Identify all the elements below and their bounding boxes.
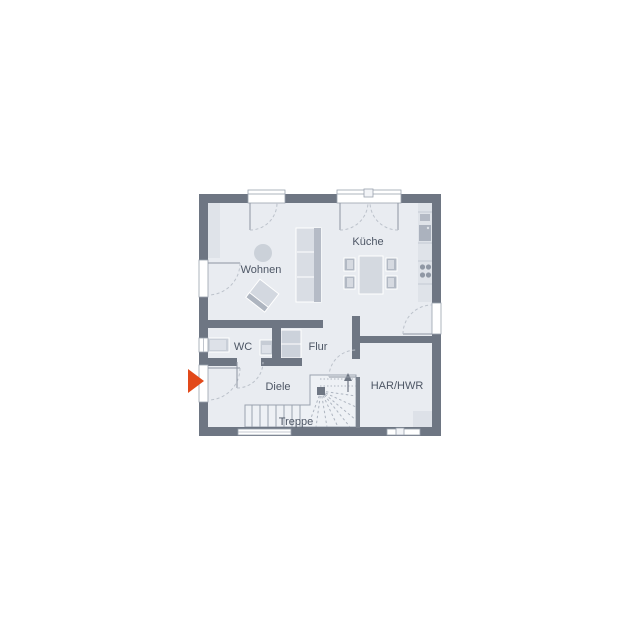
water-heater (413, 411, 432, 428)
room-label-diele: Diele (265, 381, 290, 393)
room-label-treppe: Treppe (279, 416, 313, 428)
kitchen-counter (418, 203, 432, 302)
kitchen-sink (420, 214, 430, 221)
window-har (387, 428, 420, 435)
wall-stairs-har (356, 377, 360, 428)
sofa (296, 228, 321, 302)
floor-plan-page: Wohnen Küche WC Flur Diele HAR/HWR Trepp… (0, 0, 636, 636)
window-treppe (238, 429, 291, 435)
window-wc (199, 338, 208, 352)
dining-table (359, 256, 383, 294)
floor-plan-svg: Wohnen Küche WC Flur Diele HAR/HWR Trepp… (0, 0, 636, 636)
sideboard (208, 201, 220, 258)
wall-wardrobe-bottom (261, 358, 302, 366)
room-label-kueche: Küche (352, 236, 383, 248)
room-label-har-hwr: HAR/HWR (371, 380, 424, 392)
room-label-flur: Flur (309, 341, 328, 353)
wall-har-top (356, 336, 441, 343)
oven (419, 225, 431, 241)
coffee-table (254, 244, 272, 262)
room-label-wc: WC (234, 341, 252, 353)
wall-wohnen-flur (199, 320, 323, 328)
room-label-wohnen: Wohnen (241, 264, 282, 276)
wall-wc-wardrobe (272, 328, 281, 366)
wall-top (199, 194, 441, 203)
hall-wardrobe (281, 330, 301, 358)
stair-newel-post (317, 387, 325, 395)
